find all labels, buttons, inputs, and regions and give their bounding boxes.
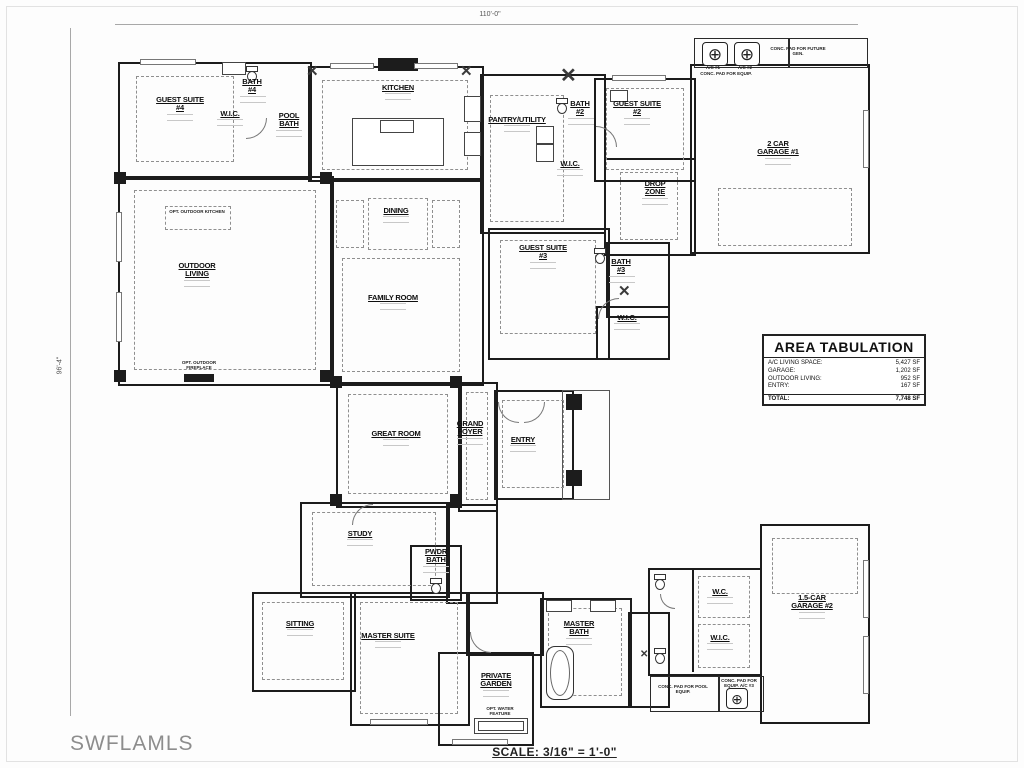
room-label-bath-4: BATH #4 [240, 78, 264, 103]
room-label-garage-1: 2 CAR GARAGE #1 [755, 140, 801, 165]
room-label-master-bath: MASTER BATH [561, 620, 597, 645]
pier [320, 172, 332, 184]
ac-unit-icon: ⊕ [702, 42, 728, 66]
room-label-study: STUDY [340, 530, 380, 546]
top-dimension-label: 110'-0" [455, 11, 525, 18]
refrigerator [464, 96, 481, 122]
table-row: OUTDOOR LIVING: 952 SF [764, 376, 924, 384]
bath4-vanity [222, 62, 246, 75]
top-dimension-line [115, 24, 858, 25]
toilet-bath3 [594, 248, 606, 264]
watermark: SWFLAMLS [70, 732, 194, 756]
garage-2-car-area [772, 538, 858, 594]
skylight-x-icon: ✕ [306, 64, 319, 79]
ceiling-study [312, 512, 436, 586]
annotation-future-gen: CONC. PAD FOR FUTURE GEN. [768, 46, 828, 56]
skylight-x-icon: ✕ [460, 64, 473, 79]
row-label: ENTRY: [768, 383, 790, 391]
table-total-row: TOTAL: 7,748 SF [764, 394, 924, 404]
room-label-bath-3: BATH #3 [609, 258, 633, 283]
dining-side-right [432, 200, 460, 248]
entry-pier [566, 470, 582, 486]
room-label-garage-2: 1.5-CAR GARAGE #2 [786, 594, 838, 619]
window [863, 560, 869, 618]
pier [330, 376, 342, 388]
annotation-conc-pad-equip: CONC. PAD FOR EQUIP. [698, 71, 754, 76]
row-value: 1,202 SF [896, 368, 920, 376]
floor-plan-sheet: 110'-0" 96'-4" [0, 0, 1024, 768]
toilet-pwdr [430, 578, 442, 594]
total-label: TOTAL: [768, 396, 789, 402]
room-label-guest-suite-4: GUEST SUITE #4 [155, 96, 205, 121]
row-label: A/C LIVING SPACE: [768, 360, 823, 368]
room-label-guest-suite-2: GUEST SUITE #2 [612, 100, 662, 125]
window [116, 212, 122, 262]
master-tub [546, 646, 574, 700]
entry-pier [566, 394, 582, 410]
room-label-pantry-utility: PANTRY/UTILITY [480, 116, 554, 132]
window [414, 63, 458, 69]
window [330, 63, 374, 69]
window [140, 59, 196, 65]
master-shower-icon: ✕ [640, 650, 648, 660]
row-value: 952 SF [901, 376, 920, 384]
ac-unit-icon: ⊕ [726, 688, 748, 709]
toilet-wc-2 [654, 648, 666, 664]
row-label: OUTDOOR LIVING: [768, 376, 822, 384]
row-label: GARAGE: [768, 368, 795, 376]
room-label-wic-4: W.I.C. [215, 110, 245, 126]
annotation-outdoor-fireplace: OPT. OUTDOOR FIREPLACE [176, 360, 222, 370]
wall-ovens [464, 132, 481, 156]
room-label-pool-bath: POOL BATH [275, 112, 303, 137]
room-label-private-garden: PRIVATE GARDEN [476, 672, 516, 697]
master-vanity-left [546, 600, 572, 612]
master-vanity-right [590, 600, 616, 612]
ac-unit-icon: ⊕ [734, 42, 760, 66]
ceiling-grand-foyer [466, 392, 488, 500]
window [370, 719, 428, 725]
area-tabulation-title: AREA TABULATION [764, 336, 924, 358]
table-row: ENTRY: 167 SF [764, 383, 924, 391]
outdoor-fireplace [184, 374, 214, 382]
room-label-drop-zone: DROP ZONE [640, 180, 670, 205]
annotation-ac-2: A/C #2 [732, 65, 758, 70]
ceiling-family-room [342, 258, 460, 372]
scale-label: SCALE: 3/16" = 1'-0" [462, 745, 647, 759]
window [612, 75, 666, 81]
window [863, 110, 869, 168]
garage-1-car-area [718, 188, 852, 246]
room-label-wic-3: W.I.C. [612, 314, 642, 330]
room-label-sitting: SITTING [280, 620, 320, 636]
left-dimension-line [70, 28, 71, 716]
annotation-ac-3: CONC. PAD FOR EQUIP. A/C #3 [715, 678, 763, 688]
kitchen-hood [378, 58, 418, 71]
annotation-ac-1: A/C #1 [700, 65, 726, 70]
room-label-wic-master: W.I.C. [705, 634, 735, 650]
toilet-bath2 [556, 98, 568, 114]
room-label-pwdr-bath: PWDR BATH [421, 548, 451, 573]
pier [114, 172, 126, 184]
annotation-water-feature: OPT. WATER FEATURE [477, 706, 523, 716]
total-value: 7,748 SF [896, 396, 920, 402]
pool-bath-shower-x-icon: ✕ [560, 66, 577, 86]
annotation-pool-equip: CONC. PAD FOR POOL EQUIP. [654, 684, 712, 694]
room-label-outdoor-living: OUTDOOR LIVING [174, 262, 220, 287]
room-label-guest-suite-3: GUEST SUITE #3 [518, 244, 568, 269]
room-label-great-room: GREAT ROOM [356, 430, 436, 446]
room-label-kitchen: KITCHEN [373, 84, 423, 100]
kitchen-range [380, 120, 414, 133]
dining-side-left [336, 200, 364, 248]
row-value: 5,427 SF [896, 360, 920, 368]
room-label-dining: DINING [374, 207, 418, 223]
ceiling-sitting [262, 602, 344, 680]
left-dimension-label: 96'-4" [57, 346, 64, 386]
window [116, 292, 122, 342]
pier [330, 494, 342, 506]
room-label-bath-2: BATH #2 [568, 100, 592, 125]
wall-wc-divider [692, 568, 694, 672]
annotation-outdoor-kitchen: OPT. OUTDOOR KITCHEN [167, 209, 227, 214]
room-label-master-suite: MASTER SUITE [343, 632, 433, 648]
area-tabulation-rows: A/C LIVING SPACE: 5,427 SF GARAGE: 1,202… [764, 358, 924, 392]
pier [450, 376, 462, 388]
pier [450, 494, 462, 506]
area-tabulation-table: AREA TABULATION A/C LIVING SPACE: 5,427 … [762, 334, 926, 406]
toilet-wc-1 [654, 574, 666, 590]
table-row: GARAGE: 1,202 SF [764, 368, 924, 376]
table-row: A/C LIVING SPACE: 5,427 SF [764, 360, 924, 368]
window [863, 636, 869, 694]
pier [114, 370, 126, 382]
room-label-entry: ENTRY [505, 436, 541, 452]
row-value: 167 SF [901, 383, 920, 391]
room-label-family-room: FAMILY ROOM [353, 294, 433, 310]
ceiling-master-suite [360, 602, 458, 714]
bath3-shower-x-icon: ✕ [618, 284, 631, 299]
water-feature-inner [478, 721, 524, 731]
room-label-grand-foyer: GRAND FOYER [453, 420, 487, 445]
dryer [536, 144, 554, 162]
room-label-wc: W.C. [707, 588, 733, 604]
room-label-wic-2: W.I.C. [555, 160, 585, 176]
